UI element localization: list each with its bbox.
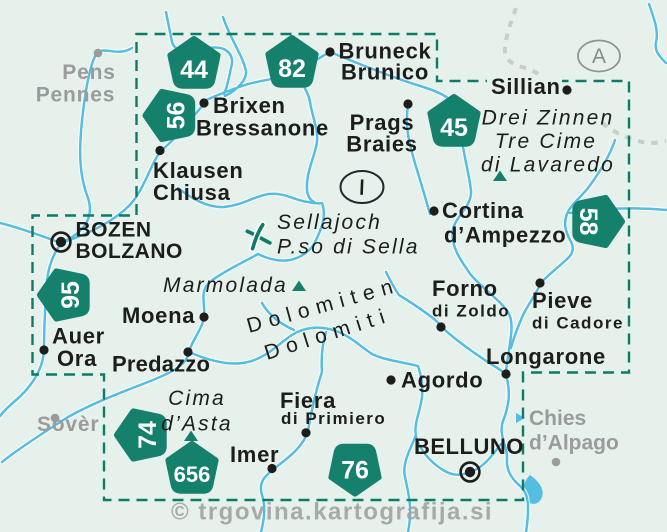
svg-text:Sellajoch: Sellajoch bbox=[277, 211, 382, 234]
svg-text:Pieve: Pieve bbox=[532, 288, 593, 313]
svg-text:Chies: Chies bbox=[529, 407, 586, 430]
svg-text:Agordo: Agordo bbox=[401, 368, 483, 393]
svg-text:di Cadore: di Cadore bbox=[532, 314, 624, 333]
svg-text:di Lavaredo: di Lavaredo bbox=[481, 154, 615, 177]
svg-text:76: 76 bbox=[341, 457, 369, 485]
svg-text:82: 82 bbox=[278, 55, 306, 83]
svg-text:Brixen: Brixen bbox=[213, 93, 286, 118]
svg-text:di Primiero: di Primiero bbox=[281, 409, 386, 428]
svg-text:45: 45 bbox=[440, 114, 468, 142]
svg-text:Sillian: Sillian bbox=[491, 74, 561, 99]
svg-text:BOLZANO: BOLZANO bbox=[76, 240, 183, 263]
svg-text:58: 58 bbox=[574, 208, 602, 236]
svg-text:56: 56 bbox=[163, 102, 191, 130]
svg-text:BOZEN: BOZEN bbox=[76, 219, 152, 242]
svg-text:© trgovina.kartografija.si: © trgovina.kartografija.si bbox=[171, 499, 493, 526]
svg-text:Sovèr: Sovèr bbox=[37, 413, 99, 436]
svg-text:P.so di Sella: P.so di Sella bbox=[277, 236, 420, 259]
svg-text:Brunico: Brunico bbox=[341, 60, 429, 85]
svg-text:74: 74 bbox=[134, 421, 162, 449]
svg-text:95: 95 bbox=[57, 281, 85, 309]
svg-text:44: 44 bbox=[180, 56, 208, 84]
svg-text:Imer: Imer bbox=[230, 442, 279, 467]
svg-text:Ora: Ora bbox=[57, 346, 97, 371]
svg-text:d’Ampezzo: d’Ampezzo bbox=[444, 223, 566, 248]
svg-text:Tre Cime: Tre Cime bbox=[495, 130, 597, 153]
svg-text:Bressanone: Bressanone bbox=[196, 116, 329, 141]
svg-text:d’Asta: d’Asta bbox=[161, 413, 233, 436]
svg-text:Auer: Auer bbox=[52, 324, 105, 349]
svg-text:Pennes: Pennes bbox=[36, 84, 116, 107]
svg-text:Pens: Pens bbox=[62, 61, 115, 84]
svg-text:Cima: Cima bbox=[168, 387, 226, 410]
svg-text:di Zoldo: di Zoldo bbox=[432, 302, 510, 321]
svg-text:Longarone: Longarone bbox=[486, 344, 606, 369]
svg-text:Moena: Moena bbox=[122, 303, 195, 328]
svg-text:Drei Zinnen: Drei Zinnen bbox=[482, 107, 615, 130]
svg-text:Forno: Forno bbox=[432, 276, 498, 301]
svg-text:BELLUNO: BELLUNO bbox=[414, 434, 524, 459]
svg-text:A: A bbox=[592, 45, 606, 68]
svg-text:656: 656 bbox=[174, 462, 211, 487]
svg-text:Marmolada: Marmolada bbox=[163, 274, 288, 297]
svg-text:d’Alpago: d’Alpago bbox=[529, 432, 619, 455]
svg-text:Predazzo: Predazzo bbox=[112, 352, 210, 377]
svg-text:Cortina: Cortina bbox=[442, 198, 524, 223]
svg-text:Braies: Braies bbox=[346, 132, 417, 157]
svg-text:Chiusa: Chiusa bbox=[153, 180, 231, 205]
